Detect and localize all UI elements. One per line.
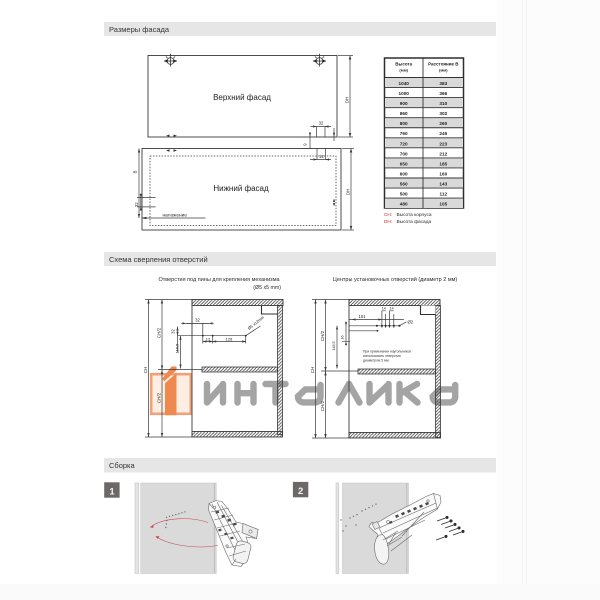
svg-text:112: 112: [440, 192, 448, 197]
svg-text:245: 245: [439, 131, 447, 136]
svg-text:760: 760: [400, 131, 408, 136]
svg-text:Высота корпуса: Высота корпуса: [397, 212, 432, 218]
svg-text:650: 650: [400, 161, 408, 166]
svg-text:При применении наугольников: При применении наугольников: [363, 350, 411, 354]
svg-text:12: 12: [319, 154, 324, 159]
svg-text:(Ø5 x5 mm): (Ø5 x5 mm): [253, 285, 281, 291]
svg-text:CH/2: CH/2: [320, 400, 325, 411]
svg-text:DH: DH: [345, 97, 350, 104]
svg-text:260: 260: [439, 121, 447, 126]
svg-text:CH/2: CH/2: [320, 330, 325, 341]
svg-text:CH: CH: [310, 367, 315, 374]
svg-text:900: 900: [400, 101, 408, 106]
svg-text:185: 185: [439, 161, 447, 166]
svg-text:128: 128: [226, 336, 233, 341]
svg-text:CH:: CH:: [384, 212, 392, 218]
svg-text:B: B: [133, 170, 138, 173]
svg-text:Верхний фасад: Верхний фасад: [213, 93, 271, 102]
svg-text:Нижний фасад: Нижний фасад: [213, 184, 269, 193]
svg-text:(мм): (мм): [439, 68, 448, 73]
svg-text:32: 32: [134, 202, 139, 207]
svg-text:366: 366: [439, 91, 447, 96]
svg-text:160: 160: [439, 172, 447, 177]
svg-text:12: 12: [206, 336, 211, 341]
svg-text:310: 310: [439, 101, 447, 106]
svg-text:32: 32: [195, 318, 200, 323]
svg-text:Размеры фасада: Размеры фасада: [109, 25, 170, 34]
svg-text:использовать отверстия: использовать отверстия: [363, 354, 401, 358]
svg-text:720: 720: [400, 141, 408, 146]
svg-text:14: 14: [390, 307, 394, 311]
svg-text:2: 2: [298, 486, 303, 497]
svg-text:116,5: 116,5: [175, 343, 180, 353]
svg-text:CH/2: CH/2: [157, 392, 162, 403]
svg-text:383: 383: [439, 81, 447, 86]
svg-text:Высота: Высота: [395, 62, 412, 67]
svg-text:143: 143: [439, 182, 447, 187]
svg-text:1040: 1040: [399, 81, 410, 86]
svg-text:Ø2: Ø2: [408, 320, 414, 325]
svg-text:32: 32: [319, 121, 324, 126]
svg-text:Схема сверления отверстий: Схема сверления отверстий: [109, 255, 208, 264]
svg-text:1000: 1000: [399, 91, 410, 96]
svg-text:Расстояние B: Расстояние B: [428, 62, 459, 67]
svg-text:560: 560: [400, 182, 408, 187]
svg-text:Сборка: Сборка: [109, 461, 136, 470]
svg-text:480: 480: [400, 202, 408, 207]
svg-text:Высота фасада: Высота фасада: [397, 219, 432, 225]
svg-text:1: 1: [109, 486, 115, 497]
svg-text:148,5: 148,5: [332, 342, 336, 351]
svg-text:700: 700: [400, 151, 408, 156]
svg-text:800: 800: [400, 121, 408, 126]
svg-text:223: 223: [439, 141, 447, 146]
svg-text:500: 500: [400, 192, 408, 197]
svg-text:DH: DH: [346, 189, 351, 196]
svg-text:600: 600: [400, 172, 408, 177]
svg-text:16: 16: [341, 336, 345, 340]
svg-text:14: 14: [382, 307, 386, 311]
svg-text:32: 32: [171, 329, 176, 334]
svg-text:CH/2: CH/2: [157, 327, 162, 338]
svg-text:302: 302: [439, 111, 447, 116]
svg-text:Центры установочных отверстий: Центры установочных отверстий (диаметр 2…: [333, 276, 458, 283]
svg-text:Отверстия под пины для креплен: Отверстия под пины для крепления механиз…: [158, 277, 280, 283]
svg-text:(мм): (мм): [399, 68, 408, 73]
svg-text:212: 212: [439, 151, 447, 156]
svg-text:105: 105: [439, 202, 447, 207]
svg-text:диаметром 5 мм.: диаметром 5 мм.: [363, 359, 390, 363]
svg-text:860: 860: [400, 111, 408, 116]
svg-text:CH: CH: [143, 367, 148, 374]
svg-text:DH:: DH:: [384, 219, 392, 225]
svg-text:101: 101: [358, 314, 366, 319]
